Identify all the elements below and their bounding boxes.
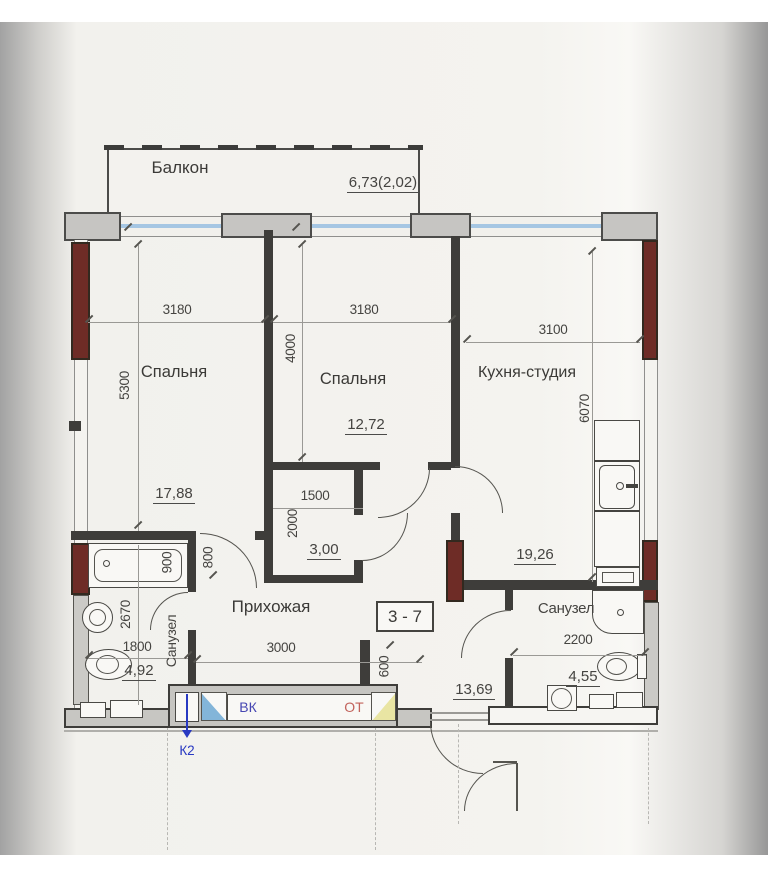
balcony-label: Балкон [125,156,235,180]
toilet-rim [606,658,627,675]
bath-left-area: 4,92 [115,661,163,681]
bathtub-drain [103,560,110,567]
shower-drain [617,609,624,616]
window-mullion [64,212,121,241]
bath-right-label: Санузел [527,599,605,618]
faucet-icon [616,482,624,490]
stove-inner [602,572,634,583]
axis-line [167,728,168,850]
wall-bath-right-left-upper [505,590,513,610]
dim-line [273,322,451,323]
bedroom1-depth-dim: 5300 [104,365,144,405]
bedroom2-label: Спальня [303,368,403,390]
hallway-niche-dim: 600 [364,646,404,686]
balcony-glazing-dashes [104,145,423,150]
door-leaf [516,763,518,811]
wall-bath-right-left-lower [505,658,513,708]
wall-bath-left-top [71,531,196,540]
entry-threshold [430,719,488,721]
kitchen-width-dim: 3100 [528,321,578,338]
window-mullion [410,213,471,238]
kitchen-depth-dim: 6070 [564,388,604,428]
door-leaf-stub [493,761,517,763]
closet-width-dim: 1500 [290,487,340,503]
bedroom2-width-dim: 3180 [339,301,389,318]
bath-right-width-dim: 2200 [554,631,602,648]
sewer-arrow [186,694,188,732]
balcony-area: 6,73(2,02) [340,172,426,194]
shaft-marker-yellow [371,692,396,721]
floor-plan-page: { "balcony": {"label": "Балкон", "area":… [0,0,768,876]
kitchen-label: Кухня-студия [460,362,594,384]
sewer-arrowhead [182,730,192,738]
wall-bedroom2-bottom-stub [428,462,451,470]
washbasin-bowl [551,688,572,709]
counter-divider [594,510,640,512]
shaft-marker-blue [201,692,227,721]
washbasin-inner [89,609,106,626]
wall-notch [69,421,81,431]
bathtub-dim: 900 [148,542,186,582]
load-bearing-pillar [642,240,658,360]
load-bearing-pillar [71,242,90,360]
wall-window [589,694,614,709]
bath-left-depth-dim: 2670 [105,594,145,634]
sewer-riser-label: К2 [172,742,202,758]
hallway-area: 13,69 [450,680,498,700]
wall-kitchen-divider [451,236,460,468]
axis-line [648,728,649,824]
heating-label: ОТ [338,697,370,717]
dim-line [466,342,640,343]
faucet-stub [626,484,638,488]
hallway-width-dim: 3000 [256,639,306,656]
load-bearing-pillar [446,540,464,602]
toilet-tank [637,654,647,679]
slab-edge-line [64,730,658,732]
wall-closet-bottom [264,575,363,583]
glazing-segment [466,224,606,228]
glazing-segment [116,224,224,228]
bedroom1-area: 17,88 [146,484,202,504]
wall-bedroom1-door-stub [255,531,264,540]
apartment-number: 3 - 7 [376,601,434,632]
bath-right-area: 4,55 [559,667,607,687]
entry-threshold [430,712,488,714]
wall-window [616,692,643,708]
hallway-label: Прихожая [219,595,323,619]
axis-line [375,728,376,850]
load-bearing-pillar [642,540,658,602]
bath-left-width-dim: 1800 [113,638,161,655]
bedroom1-door-dim: 800 [188,537,228,577]
axis-line [458,724,459,824]
water-supply-label: ВК [231,697,265,717]
closet-area: 3,00 [299,540,349,560]
window-mullion [601,212,658,241]
dim-line [88,322,264,323]
bedroom2-area: 12,72 [338,415,394,435]
glazing-segment [308,224,412,228]
counter-divider [594,460,640,462]
dim-line [513,655,646,656]
kitchen-area: 19,26 [507,545,563,565]
closet-depth-dim: 2000 [272,503,312,543]
bedroom1-width-dim: 3180 [152,301,202,318]
bedroom2-depth-dim: 4000 [270,328,310,368]
wall-window [80,702,106,718]
